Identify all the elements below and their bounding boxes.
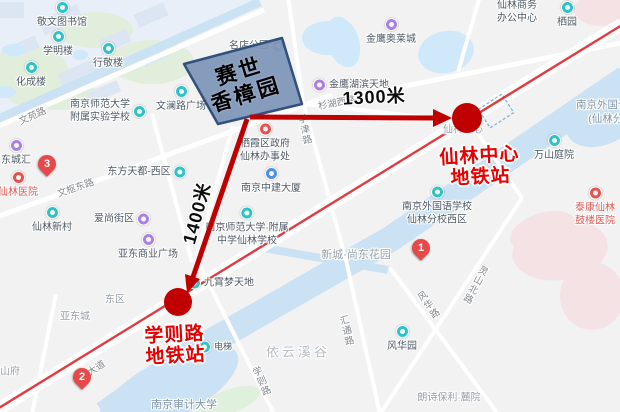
poi-langshi-poly-luyuan: 朗诗保利·麓院 <box>417 392 480 405</box>
poi-xingjing-building[interactable]: 行敬楼 <box>93 42 123 70</box>
qixia-gov-office-label: 栖霞区政府 <box>240 138 290 151</box>
xueming-building-label: 学明楼 <box>43 45 73 58</box>
poi-jingwen-library[interactable]: 敬文图书馆 <box>37 1 87 29</box>
map-pin-1[interactable]: 1 <box>408 235 433 260</box>
poi-dongfang-tiandu-west[interactable]: 东方天都-西区 <box>107 166 186 179</box>
poi-jinying-outlets[interactable]: 金鹰奥莱城 <box>366 18 416 46</box>
fenghua-garden-poi-icon <box>396 325 409 338</box>
nfls-xianlin-west-label: 仙林分校西区 <box>407 214 467 227</box>
poi-yadong-plaza[interactable]: 亚东商业广场 <box>118 233 178 261</box>
poi-shanfu: 山府 <box>0 366 20 379</box>
qixia-gov-office-label: 仙林办事处 <box>240 151 290 164</box>
map-pin-1-number: 1 <box>412 239 430 257</box>
xianlin-business-center-label: 办公中心 <box>497 12 537 25</box>
nnu-affiliated-school-label: 南京师范大学·附属 <box>205 222 288 235</box>
poi-nfls-xianlin-west[interactable]: 南京外国语学校仙林分校西区 <box>402 186 472 227</box>
jinying-outlets-label: 金鹰奥莱城 <box>366 33 416 46</box>
xianlin-hospital-poi-icon <box>12 171 25 184</box>
map-screenshot: 赛世 香樟园 敬文图书馆学明楼行敬楼化成楼南京师范大学附属实验学校文澜路广场名店… <box>0 0 620 412</box>
dongchenghui-label: 东城汇 <box>1 154 31 167</box>
yadong-city-label: 亚东城 <box>60 311 90 324</box>
xianlin-center-station-name-line: 地铁站 <box>440 165 521 190</box>
jingwen-library-label: 敬文图书馆 <box>37 16 87 29</box>
poi-nnu-affiliated-school[interactable]: 南京师范大学·附属中学仙林学校 <box>205 207 288 248</box>
qixia-gov-office-poi-icon <box>259 123 272 136</box>
aishang-block-poi-icon <box>137 213 150 226</box>
yadong-plaza-label: 亚东商业广场 <box>118 248 178 261</box>
fenghua-garden-label: 风华园 <box>387 340 417 353</box>
xueze-road-station-name: 学则路地铁站 <box>144 323 206 369</box>
poi-audit-university: 南京审计大学 <box>151 398 217 412</box>
jinying-outlets-poi-icon <box>385 18 398 31</box>
xingjing-building-label: 行敬楼 <box>93 57 123 70</box>
zhongjian-tower-poi-icon <box>265 167 278 180</box>
poi-xianlin-hospital[interactable]: 仙林医院 <box>0 171 38 199</box>
jiuxiao-dream-land-poi-icon <box>188 277 201 290</box>
xueming-building-poi-icon <box>52 30 65 43</box>
nfls-xianlin-branch-label: (仙林分校) <box>588 113 620 127</box>
nnu-affiliated-school-poi-icon <box>241 207 254 220</box>
poi-xincheng-garden: 新城·尚东花园 <box>321 248 391 262</box>
poi-xianlin-business-center: 仙林商务办公中心 <box>497 0 537 25</box>
xincheng-garden-label: 新城·尚东花园 <box>321 248 391 262</box>
poi-xueming-building[interactable]: 学明楼 <box>43 30 73 58</box>
dongchenghui-poi-icon <box>10 139 23 152</box>
yiyun-valley-label: 依云溪谷 <box>266 345 330 362</box>
poi-qiyuan[interactable]: 栖园 <box>557 1 577 29</box>
aishang-block-label: 爱尚街区 <box>94 213 134 226</box>
xueze-road-station-marker[interactable] <box>164 288 192 316</box>
east-district-label: 东区 <box>105 294 125 307</box>
nfls-xianlin-branch-label: 南京外国语学校 <box>576 99 620 113</box>
qiyuan-poi-icon <box>561 1 574 14</box>
poi-nnu-experimental-school[interactable]: 南京师范大学附属实验学校 <box>70 98 146 124</box>
poi-qixia-gov-office[interactable]: 栖霞区政府仙林办事处 <box>240 123 290 164</box>
taikang-hospital-poi-icon <box>589 187 602 200</box>
xianlin-center-station-marker[interactable] <box>452 103 482 133</box>
xianlin-xincun-label: 仙林新村 <box>32 221 72 234</box>
nnu-affiliated-school-label: 中学仙林学校 <box>217 235 277 248</box>
nnu-experimental-school-label: 附属实验学校 <box>70 111 130 124</box>
huacheng-building-label: 化成楼 <box>16 76 46 89</box>
poi-yadong-city: 亚东城 <box>60 311 90 324</box>
jiuxiao-dream-land-label: 九霄梦天地 <box>204 277 254 290</box>
xianlin-xincun-poi-icon <box>46 206 59 219</box>
xingjing-building-poi-icon <box>102 42 115 55</box>
poi-huacheng-building[interactable]: 化成楼 <box>16 61 46 89</box>
shanfu-label: 山府 <box>0 366 20 379</box>
xianlin-hospital-label: 仙林医院 <box>0 186 38 199</box>
nnu-experimental-school-poi-icon <box>133 105 146 118</box>
poi-taikang-hospital[interactable]: 泰康仙林鼓楼医院 <box>575 187 615 228</box>
wanshan-courtyard-poi-icon <box>548 134 561 147</box>
qiyuan-label: 栖园 <box>557 16 577 29</box>
map-pin-2[interactable]: 2 <box>69 364 94 389</box>
poi-yiyun-valley: 依云溪谷 <box>266 345 330 362</box>
nfls-xianlin-west-label: 南京外国语学校 <box>402 201 472 214</box>
huacheng-building-poi-icon <box>25 61 38 74</box>
langshi-poly-luyuan-label: 朗诗保利·麓院 <box>417 392 480 405</box>
xianlin-center-station-name: 仙林中心地铁站 <box>439 144 521 191</box>
taikang-hospital-label: 鼓楼医院 <box>575 215 615 228</box>
xueze-road-station-name-line: 地铁站 <box>145 344 206 368</box>
xianlin-business-center-label: 仙林商务 <box>497 0 537 12</box>
map-pin-3-number: 3 <box>38 155 56 173</box>
audit-university-label: 南京审计大学 <box>151 398 217 412</box>
jingwen-library-poi-icon <box>56 1 69 14</box>
poi-wanshan-courtyard[interactable]: 万山庭院 <box>534 134 574 162</box>
poi-aishang-block[interactable]: 爱尚街区 <box>94 213 150 226</box>
map-pin-2-number: 2 <box>73 368 91 386</box>
map-pin-3[interactable]: 3 <box>34 151 59 176</box>
poi-xianlin-xincun[interactable]: 仙林新村 <box>32 206 72 234</box>
dongfang-tiandu-west-poi-icon <box>174 166 187 179</box>
poi-fenghua-garden[interactable]: 风华园 <box>387 325 417 353</box>
jinying-lakeside-poi-icon <box>313 79 326 92</box>
poi-zhongjian-tower[interactable]: 南京中建大厦 <box>241 167 301 195</box>
poi-nfls-xianlin-branch: 南京外国语学校(仙林分校) <box>576 99 620 126</box>
yadong-plaza-poi-icon <box>142 233 155 246</box>
zhongjian-tower-label: 南京中建大厦 <box>241 182 301 195</box>
poi-east-district: 东区 <box>105 294 125 307</box>
poi-jiuxiao-dream-land[interactable]: 九霄梦天地 <box>188 277 254 290</box>
distance-label-1300米: 1300米 <box>342 81 406 110</box>
nnu-experimental-school-label: 南京师范大学 <box>70 98 130 111</box>
wanshan-courtyard-label: 万山庭院 <box>534 149 574 162</box>
dongfang-tiandu-west-label: 东方天都-西区 <box>107 166 170 179</box>
poi-dongchenghui[interactable]: 东城汇 <box>1 139 31 167</box>
taikang-hospital-label: 泰康仙林 <box>575 202 615 215</box>
